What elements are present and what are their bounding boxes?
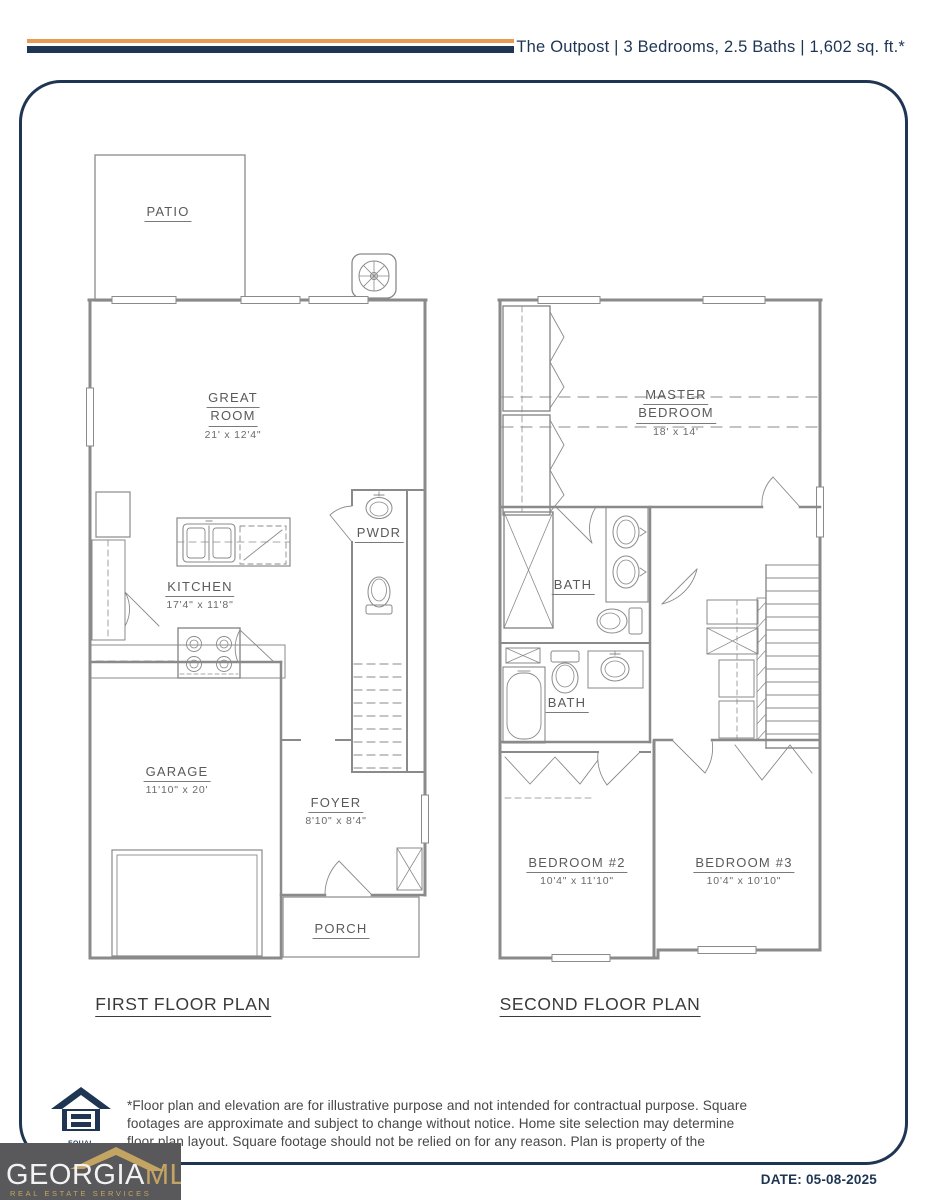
first-floor-title: FIRST FLOOR PLAN xyxy=(95,994,271,1017)
garage-label: GARAGE 11'10" x 20' xyxy=(144,764,211,797)
brand-tagline: REAL ESTATE SERVICES xyxy=(10,1189,151,1198)
first-floor-windows xyxy=(87,297,429,844)
equal-housing-house-icon xyxy=(50,1086,112,1134)
brand-wordmark: GEORGIAMLS xyxy=(6,1159,181,1192)
bedroom3-label: BEDROOM #3 10'4" x 10'10" xyxy=(693,855,794,888)
hall-bath-label: BATH xyxy=(546,695,589,713)
second-floor-title: SECOND FLOOR PLAN xyxy=(500,994,701,1017)
date-label: DATE: 05-08-2025 xyxy=(761,1172,877,1187)
kitchen-label: KITCHEN 17'4" x 11'8" xyxy=(165,579,234,612)
first-floor-stairs xyxy=(354,664,405,768)
laundry-area xyxy=(662,569,766,740)
master-closets xyxy=(503,306,564,515)
bedroom2-label: BEDROOM #2 10'4" x 11'10" xyxy=(526,855,627,888)
patio-outline xyxy=(95,155,245,301)
disclaimer-text: *Floor plan and elevation are for illust… xyxy=(127,1097,759,1152)
ac-unit-icon xyxy=(352,254,396,298)
foyer-label: FOYER 8'10" x 8'4" xyxy=(305,795,366,828)
second-floor-stairs xyxy=(766,565,818,748)
master-bedroom-label: MASTER BEDROOM 18' x 14' xyxy=(636,387,716,439)
master-bath-fixtures xyxy=(504,507,648,634)
garage-door xyxy=(112,850,262,956)
brand-name-secondary: MLS xyxy=(145,1159,181,1191)
brand-name-primary: GEORGIA xyxy=(6,1159,145,1191)
porch-label: PORCH xyxy=(313,921,370,939)
powder-room-fixtures xyxy=(330,492,392,614)
floor-plan-drawing xyxy=(0,0,927,1200)
first-floor-drawing xyxy=(87,155,429,958)
patio-label: PATIO xyxy=(144,204,191,222)
georgia-mls-logo: GEORGIAMLS REAL ESTATE SERVICES xyxy=(0,1143,181,1200)
foyer-entry xyxy=(325,848,422,895)
powder-room-label: PWDR xyxy=(355,525,404,543)
master-bath-label: BATH xyxy=(552,577,595,595)
great-room-label: GREAT ROOM 21' x 12'4" xyxy=(205,390,262,442)
